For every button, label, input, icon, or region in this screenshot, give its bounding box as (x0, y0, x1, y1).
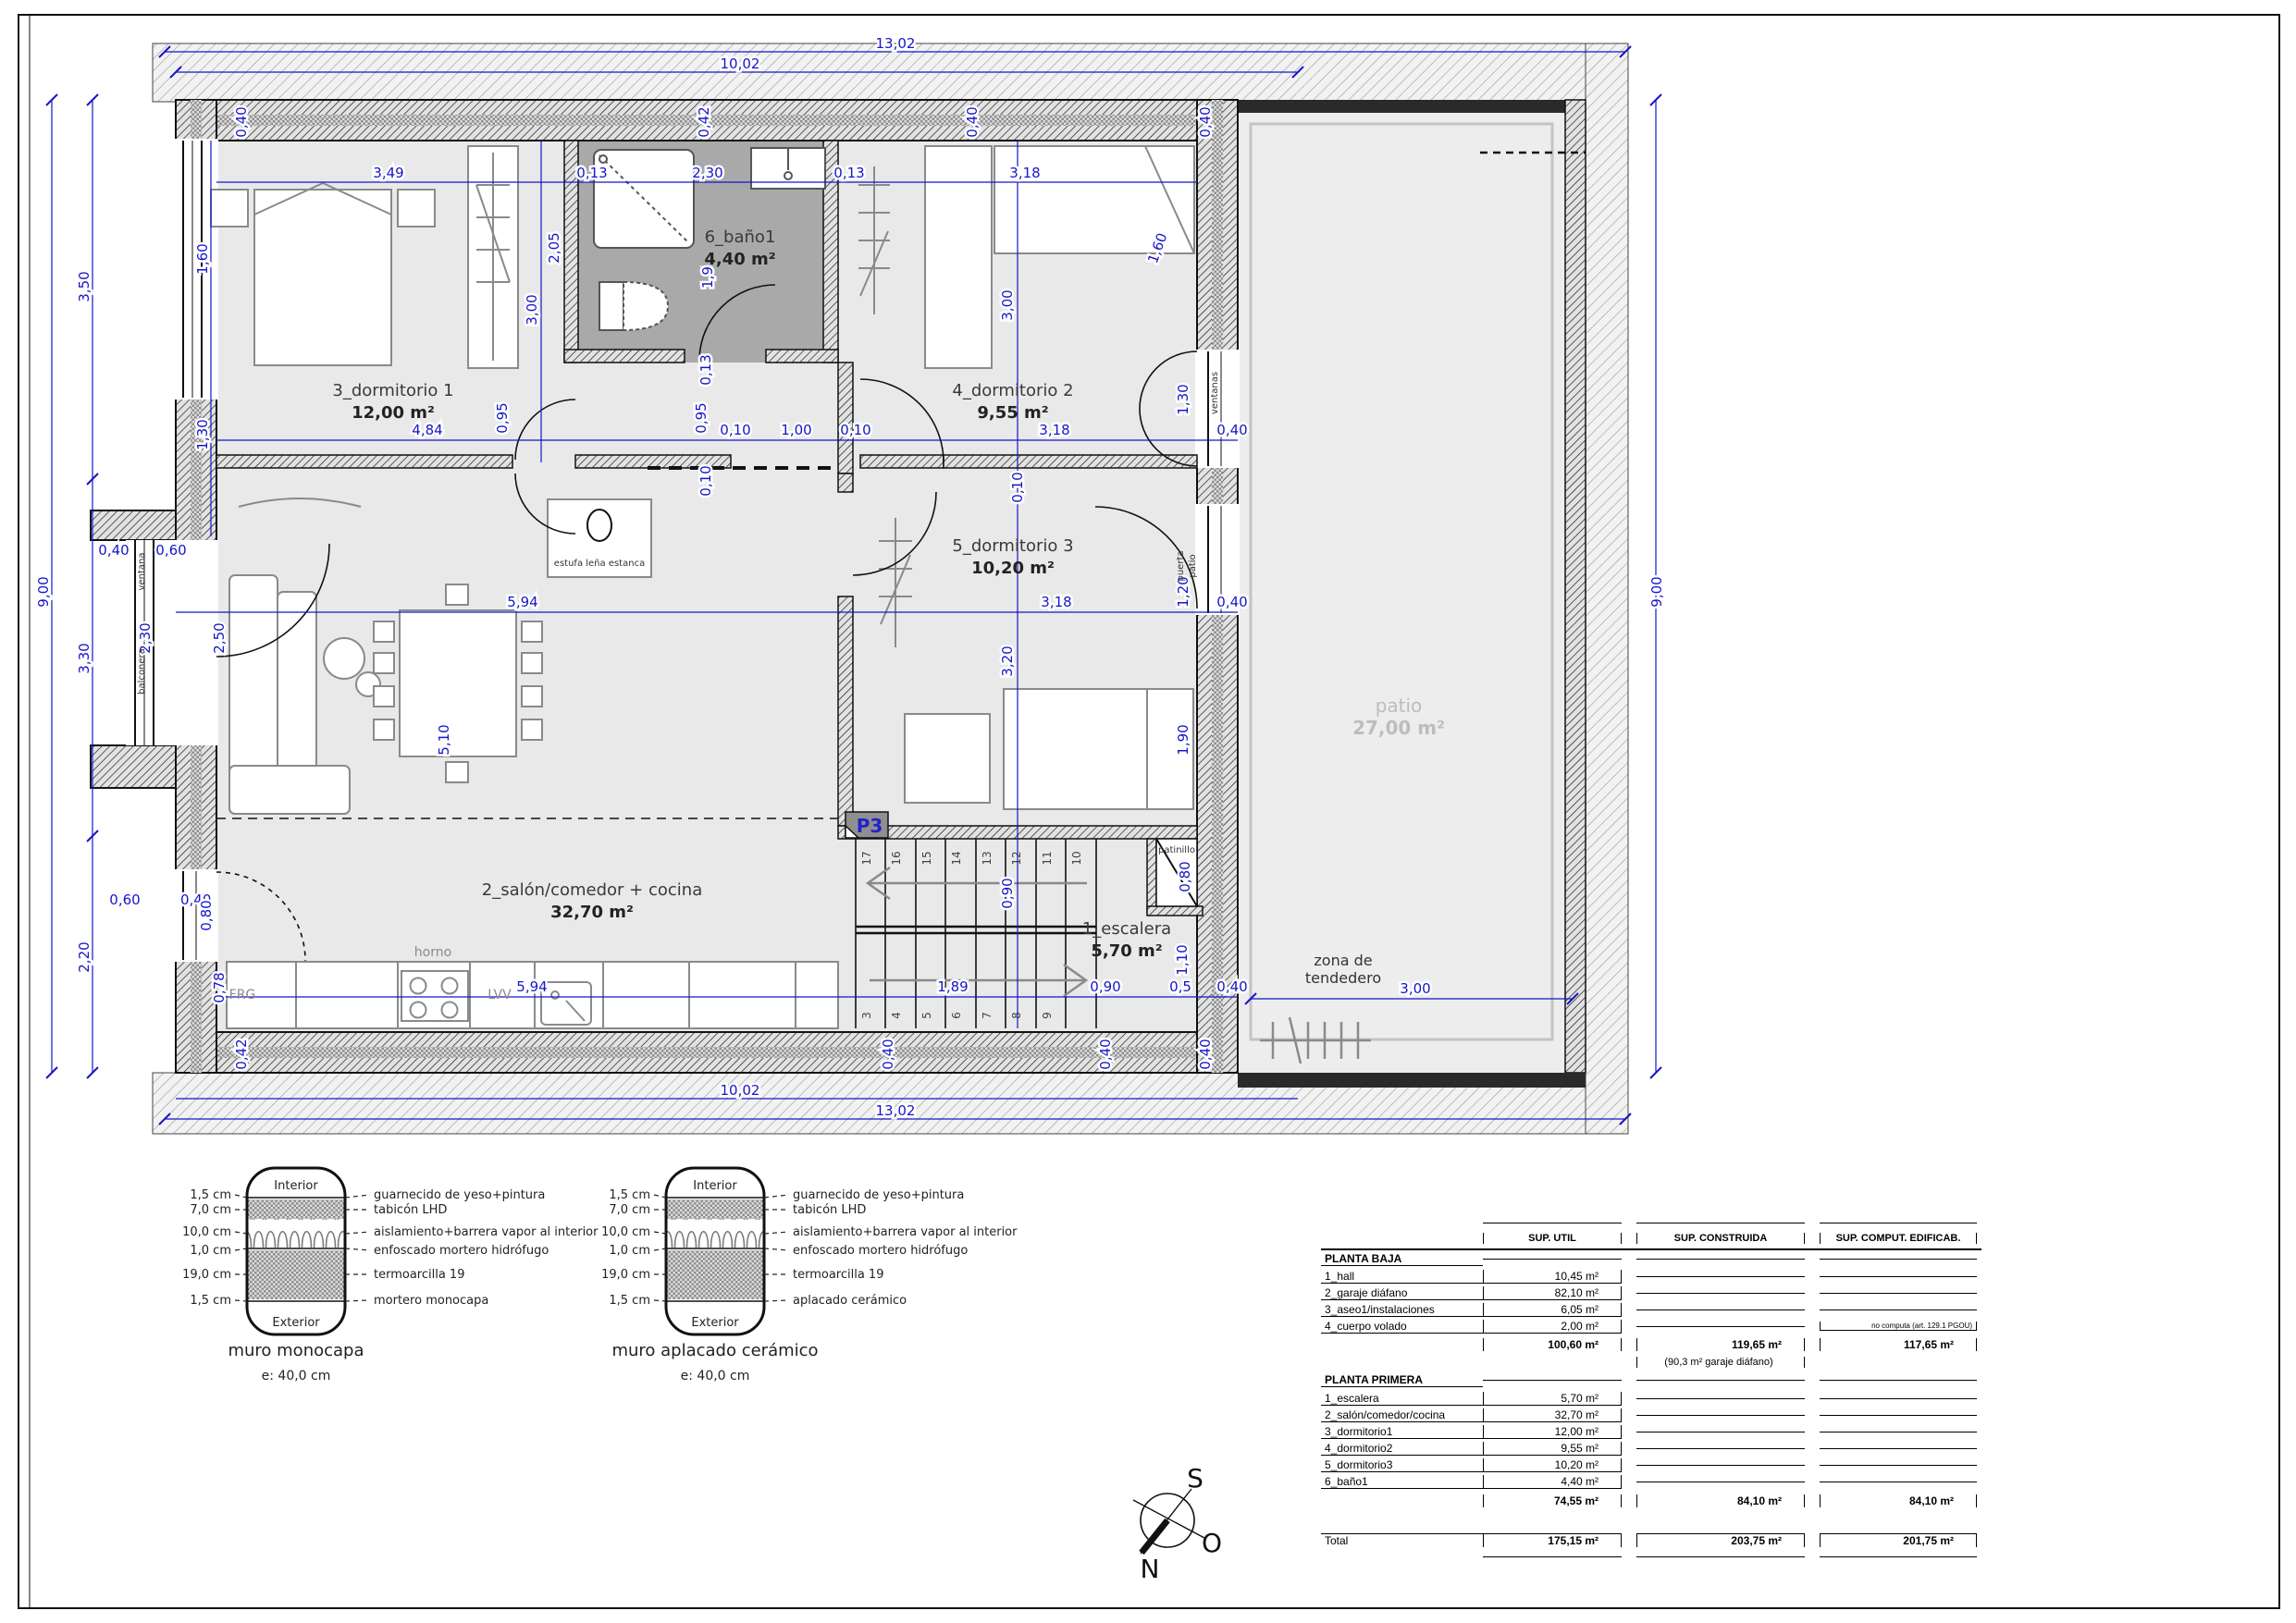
svg-text:13,02: 13,02 (876, 1102, 916, 1119)
stove-label: estufa leña estanca (554, 559, 645, 569)
row-dormitorio2: 4_dormitorio2 9,55 m² (1321, 1440, 1981, 1457)
svg-text:4,84: 4,84 (412, 422, 442, 438)
svg-text:1,60: 1,60 (194, 243, 211, 274)
svg-text:17: 17 (860, 851, 873, 865)
svg-text:1_escalera: 1_escalera (1082, 919, 1171, 939)
svg-text:0,40: 0,40 (964, 106, 981, 137)
row-dormitorio1: 3_dormitorio1 12,00 m² (1321, 1423, 1981, 1440)
svg-text:3: 3 (860, 1012, 873, 1019)
svg-text:P3: P3 (857, 815, 883, 837)
svg-text:0,40: 0,40 (98, 542, 129, 559)
svg-text:tabicón LHD: tabicón LHD (374, 1203, 447, 1217)
svg-text:0,40: 0,40 (880, 1039, 896, 1069)
svg-text:5_dormitorio 3: 5_dormitorio 3 (952, 536, 1073, 556)
svg-text:0,40: 0,40 (233, 106, 250, 137)
svg-text:0,10: 0,10 (720, 422, 750, 438)
svg-text:aislamiento+barrera vapor al i: aislamiento+barrera vapor al interior (374, 1225, 599, 1239)
svg-text:10,0 cm: 10,0 cm (601, 1225, 650, 1239)
areas-table: SUP. UTIL SUP. CONSTRUIDA SUP. COMPUT. E… (1321, 1217, 1981, 1562)
svg-text:3,18: 3,18 (1009, 165, 1040, 181)
svg-text:10,02: 10,02 (721, 1082, 760, 1099)
patio-area (1238, 100, 1586, 1088)
svg-text:32,70 m²: 32,70 m² (550, 903, 634, 922)
svg-text:9,00: 9,00 (35, 576, 52, 607)
drawing-sheet: patinillo (0, 0, 2296, 1623)
svg-text:15: 15 (920, 851, 933, 865)
patio-name: patio (1376, 695, 1423, 717)
svg-text:5,94: 5,94 (516, 978, 547, 995)
svg-text:19,0 cm: 19,0 cm (601, 1268, 650, 1282)
svg-text:1,9: 1,9 (699, 266, 716, 289)
svg-text:1,5 cm: 1,5 cm (190, 1188, 231, 1202)
wardrobe-dorm1 (468, 146, 518, 368)
svg-text:patio: patio (1188, 554, 1198, 577)
svg-text:3,18: 3,18 (1039, 422, 1069, 438)
patinillo-label: patinillo (1158, 845, 1195, 855)
svg-text:0,40: 0,40 (1216, 422, 1247, 438)
compass-s: S (1187, 1463, 1204, 1494)
svg-text:7,0 cm: 7,0 cm (190, 1203, 231, 1217)
svg-text:termoarcilla 19: termoarcilla 19 (374, 1268, 464, 1282)
table-row (1321, 1551, 1981, 1562)
svg-text:0,10: 0,10 (697, 465, 714, 496)
svg-text:0,80: 0,80 (1177, 861, 1193, 891)
svg-text:0,10: 0,10 (1009, 472, 1026, 502)
svg-text:1,00: 1,00 (781, 422, 811, 438)
wall-detail-aplacado: Interior Exterior 1,5 cm 7,0 cm 10,0 cm … (601, 1168, 1018, 1383)
svg-text:1,30: 1,30 (1175, 384, 1191, 414)
svg-text:3,00: 3,00 (1400, 980, 1430, 997)
svg-text:3,20: 3,20 (999, 646, 1016, 676)
row-salon: 2_salón/comedor/cocina 32,70 m² (1321, 1407, 1981, 1423)
svg-text:16: 16 (890, 851, 903, 865)
svg-text:Exterior: Exterior (272, 1316, 320, 1330)
svg-text:19,0 cm: 19,0 cm (182, 1268, 231, 1282)
svg-text:13: 13 (981, 851, 994, 865)
svg-text:5,94: 5,94 (507, 594, 537, 610)
svg-text:10: 10 (1070, 851, 1083, 865)
svg-text:aislamiento+barrera vapor al i: aislamiento+barrera vapor al interior (793, 1225, 1018, 1239)
svg-text:guarnecido de yeso+pintura: guarnecido de yeso+pintura (374, 1188, 545, 1202)
shower (594, 150, 694, 248)
toilet (599, 282, 668, 330)
row-subtotal-baja: 100,60 m² 119,65 m² 117,65 m² (1321, 1334, 1981, 1355)
svg-text:3,30: 3,30 (76, 643, 93, 673)
svg-text:10,0 cm: 10,0 cm (182, 1225, 231, 1239)
svg-text:3,00: 3,00 (999, 289, 1016, 320)
svg-text:0,13: 0,13 (576, 165, 607, 181)
svg-text:LVV: LVV (488, 988, 512, 1002)
cooktop (401, 971, 468, 1021)
row-bano1: 6_baño1 4,40 m² (1321, 1473, 1981, 1490)
table-row (1321, 1512, 1981, 1529)
svg-text:enfoscado mortero hidrófugo: enfoscado mortero hidrófugo (374, 1244, 549, 1258)
svg-text:0,40: 0,40 (1216, 594, 1247, 610)
svg-text:1,0 cm: 1,0 cm (609, 1244, 650, 1258)
svg-text:0,95: 0,95 (494, 402, 511, 433)
svg-text:ventana: ventana (137, 553, 147, 591)
svg-text:0,80: 0,80 (198, 900, 215, 930)
svg-text:guarnecido de yeso+pintura: guarnecido de yeso+pintura (793, 1188, 964, 1202)
svg-text:0,90: 0,90 (1090, 978, 1120, 995)
svg-text:11: 11 (1041, 851, 1054, 865)
svg-text:2,50: 2,50 (211, 622, 228, 653)
col-header-sup-construida: SUP. CONSTRUIDA (1636, 1233, 1805, 1244)
svg-text:0,40: 0,40 (1197, 106, 1214, 137)
col-header-sup-util: SUP. UTIL (1483, 1233, 1622, 1244)
row-hall: 1_hall 10,45 m² (1321, 1268, 1981, 1285)
row-subtotal-primera: 74,55 m² 84,10 m² 84,10 m² (1321, 1490, 1981, 1512)
svg-text:3,50: 3,50 (76, 271, 93, 301)
row-garaje: 2_garaje diáfano 82,10 m² (1321, 1285, 1981, 1301)
dining-table (374, 584, 542, 782)
svg-text:10,02: 10,02 (721, 55, 760, 72)
svg-text:2,20: 2,20 (76, 941, 93, 972)
row-dormitorio3: 5_dormitorio3 10,20 m² (1321, 1457, 1981, 1473)
svg-text:6: 6 (950, 1012, 963, 1019)
svg-text:2,05: 2,05 (546, 232, 562, 263)
svg-text:0,5: 0,5 (1169, 978, 1191, 995)
svg-text:1,90: 1,90 (1175, 724, 1191, 755)
tendedero-1: zona de (1314, 952, 1372, 969)
svg-text:Interior: Interior (693, 1179, 737, 1193)
svg-text:6_baño1: 6_baño1 (705, 227, 776, 247)
svg-text:7: 7 (981, 1012, 994, 1019)
svg-text:1,5 cm: 1,5 cm (190, 1294, 231, 1308)
svg-text:0,40: 0,40 (1216, 978, 1247, 995)
svg-text:FRG: FRG (229, 988, 256, 1002)
row-cuerpo-volado: 4_cuerpo volado 2,00 m² no computa (art.… (1321, 1318, 1981, 1334)
svg-text:mortero monocapa: mortero monocapa (374, 1294, 488, 1308)
row-total: Total 175,15 m² 203,75 m² 201,75 m² (1321, 1529, 1981, 1551)
p3-marker: P3 (846, 812, 888, 838)
svg-text:aplacado cerámico: aplacado cerámico (793, 1294, 907, 1308)
svg-text:0,10: 0,10 (840, 422, 870, 438)
svg-text:1,89: 1,89 (937, 978, 968, 995)
svg-text:0,40: 0,40 (1097, 1039, 1114, 1069)
svg-text:3,18: 3,18 (1041, 594, 1071, 610)
table-header-row: SUP. UTIL SUP. CONSTRUIDA SUP. COMPUT. E… (1321, 1228, 1981, 1250)
kitchen-sink (541, 982, 591, 1025)
tendedero-2: tendedero (1305, 969, 1381, 987)
svg-text:3_dormitorio 1: 3_dormitorio 1 (332, 381, 453, 400)
svg-text:e: 40,0 cm: e: 40,0 cm (262, 1369, 331, 1383)
svg-text:e: 40,0 cm: e: 40,0 cm (681, 1369, 750, 1383)
svg-text:7,0 cm: 7,0 cm (609, 1203, 650, 1217)
svg-text:5,70 m²: 5,70 m² (1091, 941, 1162, 961)
svg-text:1,5 cm: 1,5 cm (609, 1294, 650, 1308)
compass-o: O (1202, 1528, 1222, 1558)
svg-text:1,30: 1,30 (194, 419, 211, 449)
svg-text:Exterior: Exterior (691, 1316, 739, 1330)
wall-detail-monocapa: Interior Exterior 1,5 cm 7,0 cm 10,0 cm … (182, 1168, 599, 1383)
svg-text:4,40 m²: 4,40 m² (704, 250, 775, 269)
svg-text:10,20 m²: 10,20 m² (971, 559, 1055, 578)
svg-text:tabicón LHD: tabicón LHD (793, 1203, 866, 1217)
row-escalera: 1_escalera 5,70 m² (1321, 1390, 1981, 1407)
svg-text:1,10: 1,10 (1174, 944, 1191, 975)
svg-text:0,40: 0,40 (1197, 1039, 1214, 1069)
svg-text:horno: horno (414, 945, 451, 960)
svg-text:balconera: balconera (137, 648, 147, 695)
row-garaje-note: (90,3 m² garaje diáfano) (1321, 1355, 1981, 1370)
svg-text:4: 4 (890, 1012, 903, 1019)
svg-text:muro aplacado cerámico: muro aplacado cerámico (611, 1341, 818, 1360)
svg-text:3,00: 3,00 (524, 294, 540, 325)
svg-text:13,02: 13,02 (876, 35, 916, 52)
svg-text:12: 12 (1010, 851, 1023, 865)
compass-n: N (1141, 1554, 1160, 1584)
svg-text:12,00 m²: 12,00 m² (352, 403, 435, 423)
svg-text:puerta: puerta (1176, 551, 1186, 582)
svg-text:14: 14 (950, 851, 963, 865)
section-planta-primera: PLANTA PRIMERA (1321, 1370, 1981, 1390)
row-aseo: 3_aseo1/instalaciones 6,05 m² (1321, 1301, 1981, 1318)
svg-text:0,42: 0,42 (696, 106, 712, 137)
svg-text:muro monocapa: muro monocapa (228, 1341, 364, 1360)
svg-text:0,60: 0,60 (155, 542, 186, 559)
svg-text:2,30: 2,30 (692, 165, 722, 181)
svg-text:0,13: 0,13 (833, 165, 864, 181)
svg-text:0,60: 0,60 (109, 891, 140, 908)
section-planta-baja: PLANTA BAJA (1321, 1250, 1981, 1268)
svg-text:1,5 cm: 1,5 cm (609, 1188, 650, 1202)
svg-text:0,78: 0,78 (211, 972, 228, 1002)
svg-text:0,42: 0,42 (233, 1039, 250, 1069)
svg-text:0,95: 0,95 (693, 402, 710, 433)
patio-area-label: 27,00 m² (1352, 717, 1445, 739)
note-garaje-diafano: (90,3 m² garaje diáfano) (1636, 1357, 1805, 1368)
svg-text:termoarcilla 19: termoarcilla 19 (793, 1268, 883, 1282)
svg-text:ventanas: ventanas (1210, 372, 1220, 414)
col-header-sup-comput: SUP. COMPUT. EDIFICAB. (1820, 1233, 1977, 1244)
note-no-computa: no computa (art. 129.1 PGOU) (1820, 1322, 1977, 1331)
table-row (1321, 1217, 1981, 1228)
svg-text:8: 8 (1010, 1012, 1023, 1019)
compass-rose: S O N (1133, 1463, 1222, 1584)
kitchen-counter (227, 962, 838, 1028)
svg-text:3,49: 3,49 (373, 165, 403, 181)
svg-text:1,0 cm: 1,0 cm (190, 1244, 231, 1258)
svg-text:4_dormitorio 2: 4_dormitorio 2 (952, 381, 1073, 400)
svg-text:9,00: 9,00 (1648, 576, 1665, 607)
svg-text:5: 5 (920, 1012, 933, 1019)
svg-text:2_salón/comedor + cocina: 2_salón/comedor + cocina (482, 880, 702, 900)
svg-text:0,90: 0,90 (999, 878, 1016, 908)
svg-text:Interior: Interior (274, 1179, 318, 1193)
svg-text:enfoscado mortero hidrófugo: enfoscado mortero hidrófugo (793, 1244, 968, 1258)
svg-text:0,13: 0,13 (697, 354, 714, 385)
svg-text:9: 9 (1041, 1012, 1054, 1019)
svg-text:5,10: 5,10 (436, 724, 452, 755)
svg-text:9,55 m²: 9,55 m² (977, 403, 1048, 423)
